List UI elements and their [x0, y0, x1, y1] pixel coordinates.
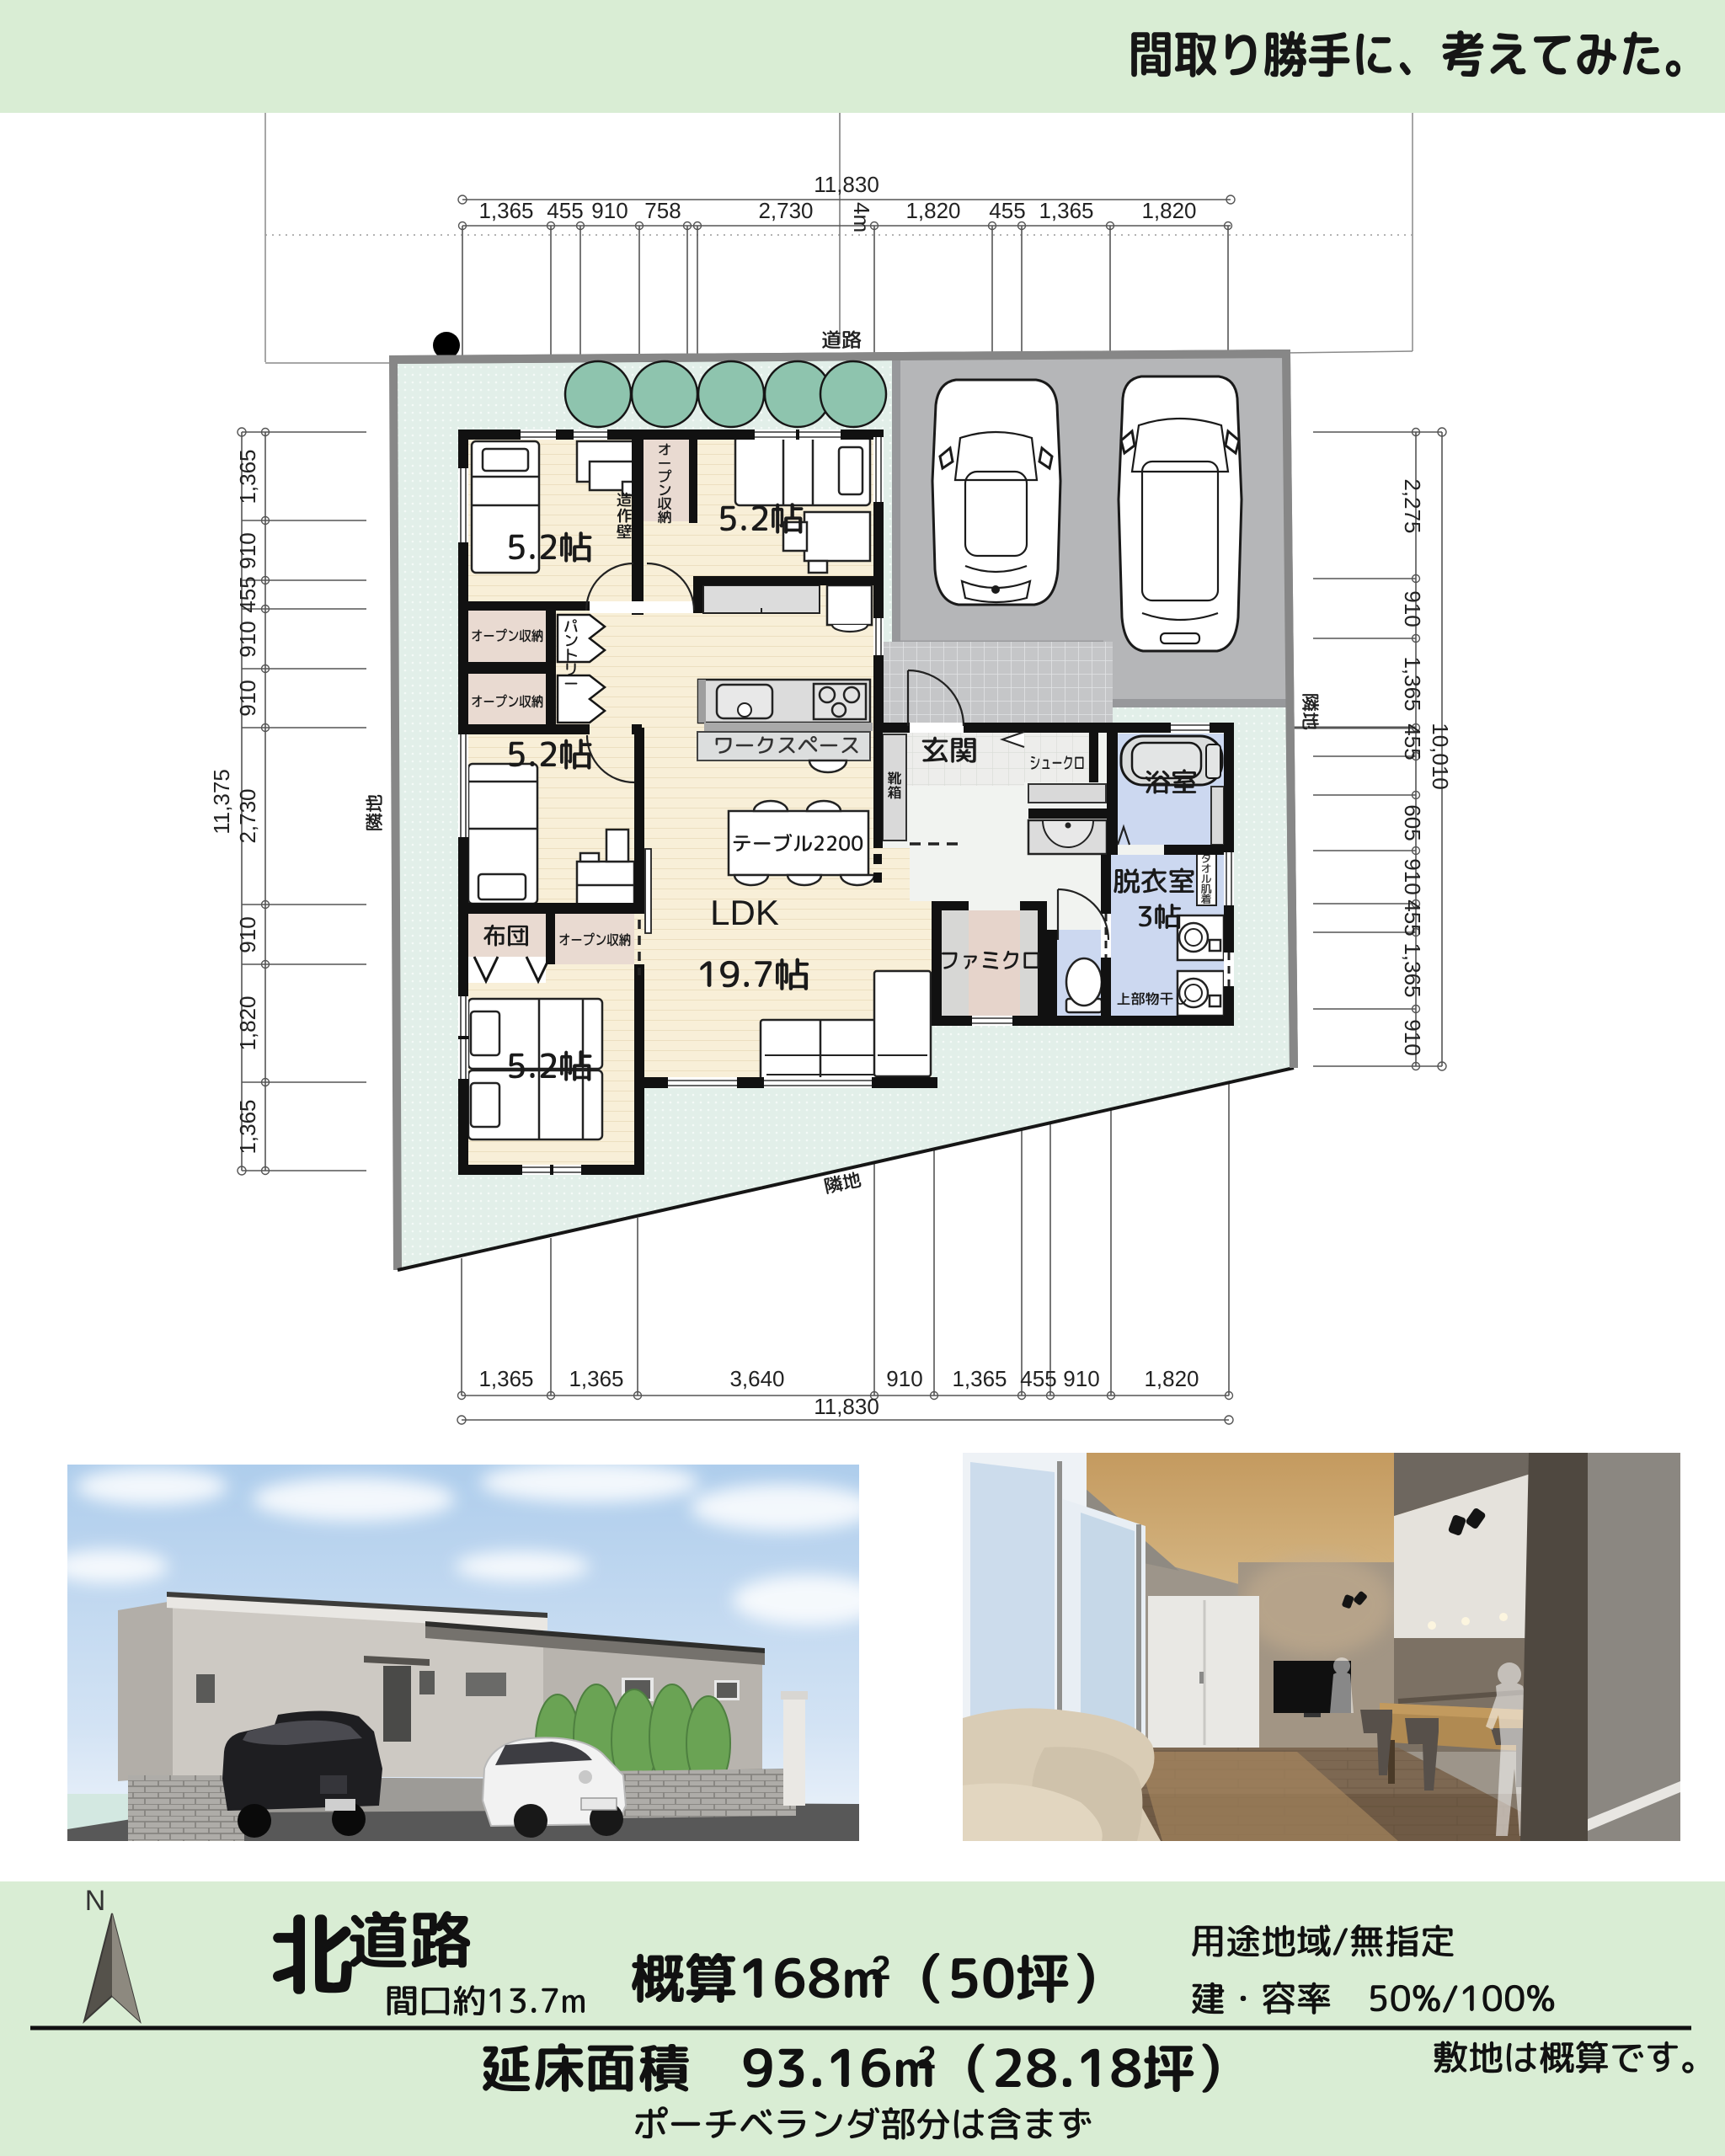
svg-text:455: 455: [547, 198, 583, 223]
svg-text:910: 910: [1400, 858, 1425, 894]
svg-text:1,365: 1,365: [1400, 942, 1425, 997]
svg-text:1,365: 1,365: [235, 1099, 260, 1154]
svg-text:910: 910: [1400, 590, 1425, 627]
svg-text:910: 910: [235, 680, 260, 716]
svg-text:1,820: 1,820: [235, 995, 260, 1050]
svg-text:1,365: 1,365: [952, 1366, 1007, 1391]
svg-text:455: 455: [235, 576, 260, 612]
svg-text:910: 910: [591, 198, 628, 223]
svg-text:910: 910: [1400, 1019, 1425, 1055]
svg-text:N: N: [85, 1885, 106, 1917]
svg-text:2,730: 2,730: [235, 788, 260, 843]
svg-text:910: 910: [886, 1366, 922, 1391]
svg-text:1,365: 1,365: [478, 1366, 533, 1391]
svg-text:1,820: 1,820: [1141, 198, 1196, 223]
svg-text:455: 455: [989, 198, 1025, 223]
svg-text:2,730: 2,730: [758, 198, 813, 223]
svg-text:910: 910: [235, 916, 260, 953]
svg-text:1,365: 1,365: [1400, 656, 1425, 711]
svg-text:455: 455: [1400, 723, 1425, 760]
svg-text:11,830: 11,830: [814, 172, 879, 197]
svg-text:11,830: 11,830: [814, 1394, 879, 1419]
svg-text:1,820: 1,820: [905, 198, 960, 223]
svg-text:1,365: 1,365: [1039, 198, 1093, 223]
svg-text:1,820: 1,820: [1144, 1366, 1199, 1391]
svg-text:LDK: LDK: [710, 893, 779, 932]
svg-text:2: 2: [872, 1950, 890, 1987]
svg-text:910: 910: [235, 621, 260, 657]
svg-text:1,365: 1,365: [235, 449, 260, 504]
svg-text:1,365: 1,365: [478, 198, 533, 223]
svg-text:605: 605: [1400, 804, 1425, 841]
svg-text:455: 455: [1400, 899, 1425, 936]
svg-text:910: 910: [235, 532, 260, 568]
svg-text:758: 758: [644, 198, 681, 223]
svg-text:2,275: 2,275: [1400, 478, 1425, 533]
svg-text:4m: 4m: [849, 202, 874, 232]
svg-text:10,010: 10,010: [1428, 723, 1453, 790]
svg-text:11,375: 11,375: [209, 769, 234, 835]
svg-text:3,640: 3,640: [729, 1366, 784, 1391]
svg-text:2: 2: [918, 2041, 936, 2076]
svg-text:455: 455: [1020, 1366, 1056, 1391]
svg-text:910: 910: [1063, 1366, 1099, 1391]
svg-text:1,365: 1,365: [569, 1366, 623, 1391]
